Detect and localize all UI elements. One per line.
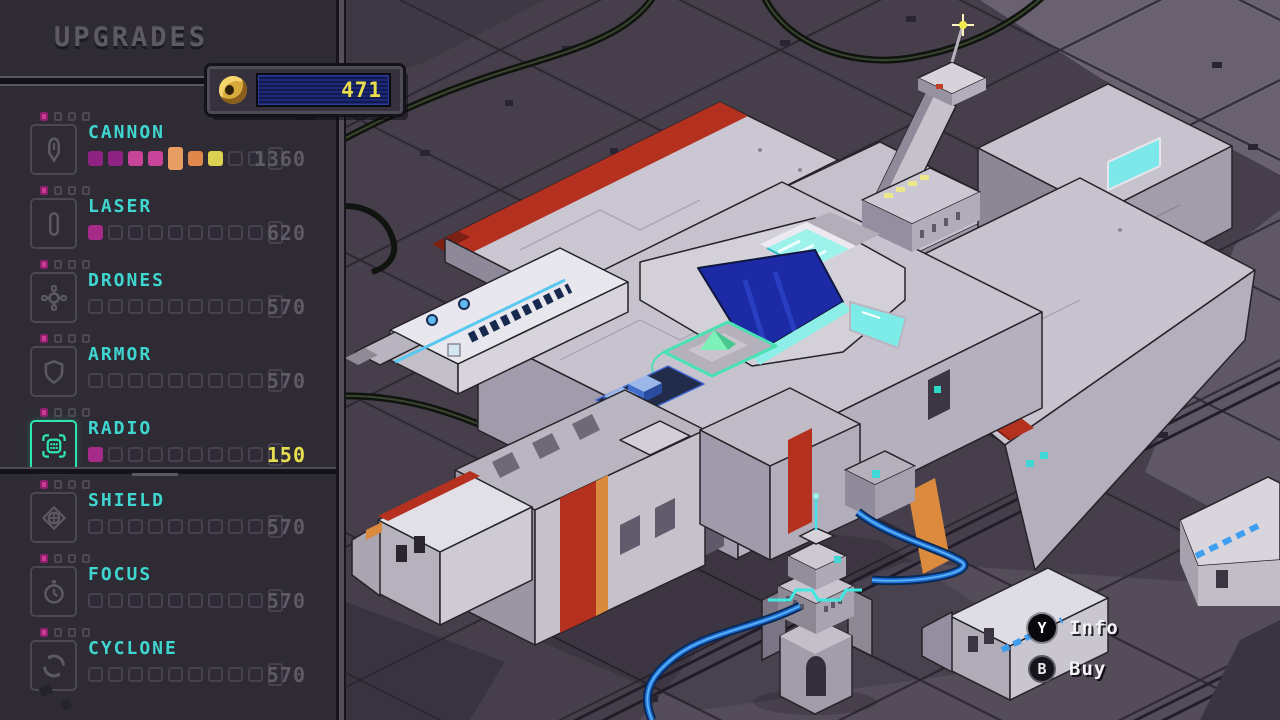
drone-icon [30,272,77,323]
pip-empty [228,593,243,608]
upgrade-level-pips [88,589,283,612]
upgrade-price: 150 [267,444,306,466]
pip-empty [208,373,223,388]
rivet-lit [40,628,48,637]
currency-amount: 471 [341,78,382,102]
pip-empty [248,447,263,462]
pip-empty [208,299,223,314]
pip-empty [228,151,243,166]
pip-empty [148,447,163,462]
upgrade-label: CANNON [88,122,165,143]
rivet [54,334,62,343]
pip-empty [108,225,123,240]
pip-empty [148,667,163,682]
pip-empty [148,593,163,608]
upgrade-level-pips [88,221,283,244]
rivet [54,112,62,121]
pip-empty [188,519,203,534]
page-title: UPGRADES [54,22,208,53]
pip-empty [188,447,203,462]
pip-empty [248,225,263,240]
stopwatch-icon [30,566,77,617]
upgrade-price: 570 [267,516,306,538]
pip-empty [88,593,103,608]
cyclone-icon [30,640,77,691]
rivet [68,554,76,563]
buy-label: Buy [1069,658,1106,680]
pip-empty [208,593,223,608]
pip-empty [208,667,223,682]
pip-empty [188,593,203,608]
upgrade-label: FOCUS [88,564,152,585]
rivet [68,260,76,269]
rivet-decoration [40,554,90,563]
rivet [82,408,90,417]
upgrade-label: SHIELD [88,490,165,511]
pip-empty [228,519,243,534]
rivet [54,408,62,417]
rivet-lit [40,260,48,269]
pip-empty [128,373,143,388]
pip-empty [148,373,163,388]
upgrade-label: RADIO [88,418,152,439]
pip-empty [168,667,183,682]
pip-empty [208,447,223,462]
button-prompts: Y Info B Buy [1028,614,1119,683]
upgrades-panel: UPGRADES 471 CANNON1360LASER620DRONES570… [0,0,346,720]
upgrade-label: ARMOR [88,344,152,365]
pip-empty [168,447,183,462]
pip-empty [88,667,103,682]
pip-empty [168,593,183,608]
rivet [82,260,90,269]
pip-empty [208,519,223,534]
upgrade-price: 570 [267,590,306,612]
pip-empty [88,373,103,388]
upgrade-label: CYCLONE [88,638,178,659]
pip-empty [148,519,163,534]
rivet [68,186,76,195]
pip-empty [248,373,263,388]
pip-empty [128,519,143,534]
rivet-lit [40,554,48,563]
rivet [68,334,76,343]
pip-empty [128,667,143,682]
buy-prompt[interactable]: B Buy [1028,655,1119,683]
pip-empty [168,225,183,240]
upgrade-price: 570 [267,664,306,686]
title-divider [0,76,222,86]
pip-empty [108,447,123,462]
rivet [68,408,76,417]
pip-empty [108,519,123,534]
pip-empty [188,373,203,388]
pip-empty [88,519,103,534]
rivet [54,186,62,195]
pip-empty [188,299,203,314]
pip-empty [128,447,143,462]
upgrade-row-focus[interactable]: FOCUS570 [0,554,336,628]
rivet [54,628,62,637]
upgrade-row-armor[interactable]: ARMOR570 [0,334,336,408]
pip-empty [168,519,183,534]
upgrade-price: 570 [267,370,306,392]
upgrade-row-shield[interactable]: SHIELD570 [0,480,336,554]
rivet-decoration [40,408,90,417]
pip-filled [88,151,103,166]
rivet-decoration [40,186,90,195]
upgrade-row-cannon[interactable]: CANNON1360 [0,112,336,186]
rivet [68,480,76,489]
pip-filled [188,151,203,166]
pip-empty [228,447,243,462]
upgrade-level-pips [88,443,283,466]
radio-icon [30,420,77,471]
info-prompt[interactable]: Y Info [1028,614,1119,642]
currency-display: 471 [207,66,403,114]
pip-empty [208,225,223,240]
upgrade-level-pips [88,515,283,538]
upgrade-price: 620 [267,222,306,244]
pip-empty [128,225,143,240]
pip-empty [148,225,163,240]
pip-empty [248,667,263,682]
rivet [82,628,90,637]
currency-lcd: 471 [256,73,391,107]
rivet [68,112,76,121]
upgrade-price: 570 [267,296,306,318]
pip-empty [108,593,123,608]
upgrade-price: 1360 [254,148,306,170]
pip-filled [108,151,123,166]
pip-empty [248,519,263,534]
pip-empty [188,667,203,682]
rivet [82,186,90,195]
rivet [82,112,90,121]
pip-empty [248,593,263,608]
pip-empty [108,373,123,388]
rivet [54,480,62,489]
upgrade-level-pips [88,295,283,318]
b-button-icon[interactable]: B [1028,655,1056,683]
pip-empty [228,225,243,240]
pip-empty [228,667,243,682]
rivet-decoration [40,334,90,343]
pip-filled [148,151,163,166]
pip-empty [108,299,123,314]
rivet [54,260,62,269]
pip-empty [248,299,263,314]
upgrade-level-pips [88,369,283,392]
pip-empty [128,299,143,314]
pip-filled [208,151,223,166]
pip-empty [88,299,103,314]
pip-empty [108,667,123,682]
upgrade-label: LASER [88,196,152,217]
pip-empty [168,373,183,388]
pip-filled [168,147,183,170]
rivet [82,554,90,563]
rivet-lit [40,334,48,343]
compass-icon [30,492,77,543]
pip-filled [128,151,143,166]
coin-icon [219,76,247,104]
rivet-decoration [40,112,90,121]
upgrade-label: DRONES [88,270,165,291]
upgrade-row-laser[interactable]: LASER620 [0,186,336,260]
upgrade-level-pips [88,663,283,686]
cannon-icon [30,124,77,175]
pip-empty [188,225,203,240]
group-divider [0,467,336,474]
rivet-decoration [40,628,90,637]
pip-empty [168,299,183,314]
pip-empty [228,373,243,388]
rivet [82,480,90,489]
laser-icon [30,198,77,249]
rivet-lit [40,186,48,195]
rivet-lit [40,408,48,417]
shield-icon [30,346,77,397]
rivet-decoration [40,480,90,489]
rivet [54,554,62,563]
pip-filled [88,225,103,240]
rivet-decoration [40,260,90,269]
info-label: Info [1069,617,1119,639]
pip-empty [228,299,243,314]
rivet-lit [40,480,48,489]
rivet [68,628,76,637]
upgrade-row-drones[interactable]: DRONES570 [0,260,336,334]
pip-empty [128,593,143,608]
pip-filled [88,447,103,462]
rivet [82,334,90,343]
pip-empty [148,299,163,314]
rivet-lit [40,112,48,121]
y-button-icon[interactable]: Y [1028,614,1056,642]
